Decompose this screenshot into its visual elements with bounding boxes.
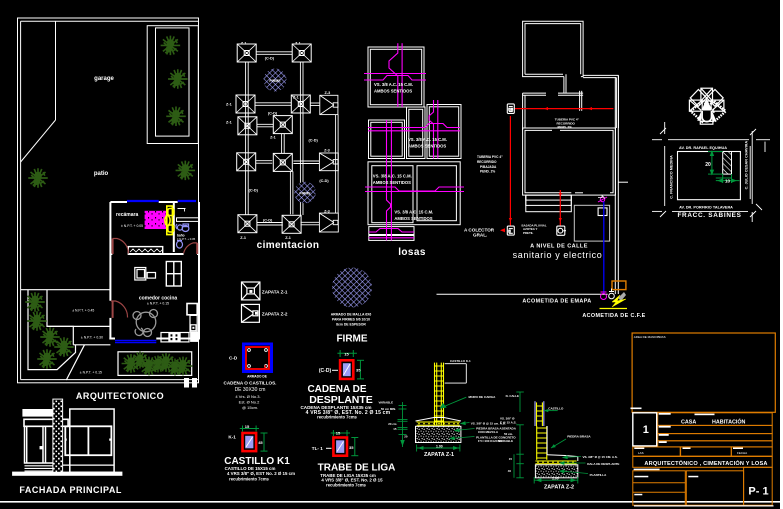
svg-text:4 VRS 3/8" Ø, EST No. 2 Ø: 4 VRS 3/8" Ø, EST No. 2 Ø 15 cm <box>227 471 295 476</box>
svg-text:FRACC. SABINES: FRACC. SABINES <box>677 212 741 219</box>
svg-text:(C-D): (C-D) <box>268 112 278 116</box>
svg-text:(C-D): (C-D) <box>319 179 329 183</box>
svg-text:Z-1: Z-1 <box>240 236 246 240</box>
svg-text:recubrimiento 7cms: recubrimiento 7cms <box>317 415 357 420</box>
svg-text:FACHADA PRINCIPAL: FACHADA PRINCIPAL <box>19 485 122 495</box>
svg-text:FECHA: FECHA <box>737 451 747 455</box>
svg-text:1.00: 1.00 <box>552 477 559 481</box>
svg-text:15: 15 <box>344 352 349 357</box>
svg-text:Z-3: Z-3 <box>324 149 330 153</box>
svg-text:35: 35 <box>356 368 361 373</box>
svg-text:ARQUITECTÓNICO , CIMENTACIÓN Y: ARQUITECTÓNICO , CIMENTACIÓN Y LOSA <box>644 459 767 467</box>
svg-text:VS. 3/8 A.C. 15 C.M.: VS. 3/8 A.C. 15 C.M. <box>394 210 433 215</box>
svg-text:PRETIL: PRETIL <box>523 231 534 235</box>
svg-text:Z-3: Z-3 <box>325 91 331 95</box>
svg-text:PIEDRA BRASA: PIEDRA BRASA <box>567 435 591 439</box>
svg-text:MURO DE CARGA: MURO DE CARGA <box>469 395 497 399</box>
svg-text:8cm DE ESPESOR: 8cm DE ESPESOR <box>336 323 366 327</box>
svg-text:45: 45 <box>258 440 263 445</box>
svg-text:recámara: recámara <box>116 212 138 218</box>
svg-text:± N.P.T. + 0.45: ± N.P.T. + 0.45 <box>72 309 94 313</box>
svg-text:Z-1: Z-1 <box>226 103 232 107</box>
svg-text:4 Vrs. Ø No.3.: 4 Vrs. Ø No.3. <box>235 394 260 399</box>
svg-text:Z-3: Z-3 <box>324 210 330 214</box>
svg-text:VS. 3/8" Ø @ 15 CM. A.S.: VS. 3/8" Ø @ 15 CM. A.S. <box>583 455 618 459</box>
svg-text:15: 15 <box>393 427 397 431</box>
svg-text:RECORRIDO: RECORRIDO <box>477 160 497 164</box>
svg-text:40: 40 <box>508 469 512 473</box>
svg-text:FIRME: FIRME <box>336 334 367 345</box>
svg-text:50 cm MIN.: 50 cm MIN. <box>381 407 396 411</box>
svg-text:(C-D): (C-D) <box>319 368 332 374</box>
svg-text:recubrimiento 7cms: recubrimiento 7cms <box>326 482 366 487</box>
svg-text:CON MEZCLA: CON MEZCLA <box>478 430 499 434</box>
svg-text:± N.P.T. + 0.15: ± N.P.T. + 0.15 <box>147 302 169 306</box>
svg-text:Z-1: Z-1 <box>241 42 247 46</box>
svg-text:15: 15 <box>509 457 513 461</box>
svg-text:AV. DR. PORFIRIO TALAVERA: AV. DR. PORFIRIO TALAVERA <box>679 206 733 210</box>
svg-text:C. FRANCISCO MEDINA: C. FRANCISCO MEDINA <box>670 155 674 199</box>
svg-text:sanitario y electrico: sanitario y electrico <box>513 250 603 260</box>
svg-text:50 cm.: 50 cm. <box>504 432 513 436</box>
svg-text:1: 1 <box>643 424 649 436</box>
svg-text:15: 15 <box>245 424 250 429</box>
svg-text:ARQUITECTONICO: ARQUITECTONICO <box>76 391 164 401</box>
svg-text:VARIABLE: VARIABLE <box>378 401 393 405</box>
svg-text:C-D: C-D <box>229 356 238 361</box>
svg-text:ZAPATA Z-1: ZAPATA Z-1 <box>262 290 288 295</box>
svg-text:Z-1: Z-1 <box>295 42 301 46</box>
svg-text:ZAPATA Z-1: ZAPATA Z-1 <box>424 452 454 458</box>
svg-text:LAS: LAS <box>638 451 644 455</box>
svg-text:± N.P.T. + 0.30: ± N.P.T. + 0.30 <box>81 335 103 339</box>
svg-text:PLANTILLA: PLANTILLA <box>590 473 607 477</box>
svg-text:AMBOS SENTIDOS: AMBOS SENTIDOS <box>373 180 411 185</box>
svg-text:PARA FIRMES 6/6 10/10: PARA FIRMES 6/6 10/10 <box>332 318 370 322</box>
svg-text:TUBERIA PVC 4": TUBERIA PVC 4" <box>477 155 503 159</box>
svg-text:HABITACIÓN: HABITACIÓN <box>712 417 746 425</box>
svg-text:DE 30X30 cm: DE 30X30 cm <box>235 387 266 393</box>
svg-text:@ 15cm.: @ 15cm. <box>242 405 258 410</box>
svg-text:Z-1: Z-1 <box>293 96 299 100</box>
svg-text:(C-D): (C-D) <box>249 189 259 193</box>
svg-text:garage: garage <box>94 76 114 82</box>
svg-text:ARMADO DE MALLA 6X6: ARMADO DE MALLA 6X6 <box>331 313 372 317</box>
svg-text:ARMADO DE: ARMADO DE <box>247 375 267 379</box>
svg-text:P/BAJADA: P/BAJADA <box>480 165 497 169</box>
svg-text:C. JULIO CESAR CHAVIRA: C. JULIO CESAR CHAVIRA <box>745 141 749 190</box>
svg-text:ZAPATA Z-2: ZAPATA Z-2 <box>262 312 288 317</box>
svg-text:TL- 1: TL- 1 <box>312 446 323 451</box>
svg-text:ACOMETIDA DE EMAPA: ACOMETIDA DE EMAPA <box>522 299 591 305</box>
svg-text:AMBOS SENTIDOS: AMBOS SENTIDOS <box>374 89 412 94</box>
svg-text:AMBOS SENTIDOS: AMBOS SENTIDOS <box>394 216 432 221</box>
svg-text:cimentacion: cimentacion <box>257 240 320 251</box>
svg-text:CASTILLO: CASTILLO <box>548 407 564 411</box>
svg-text:20: 20 <box>705 162 711 168</box>
svg-text:CASA: CASA <box>681 419 696 425</box>
svg-text:ZAPATA Z-2: ZAPATA Z-2 <box>544 484 574 490</box>
svg-text:GRAL.: GRAL. <box>473 233 487 238</box>
svg-text:P- 1: P- 1 <box>748 486 768 498</box>
svg-text:AMBOS SENTIDOS: AMBOS SENTIDOS <box>408 144 446 149</box>
svg-text:VS. 3/8 A.C. 15 C.M.: VS. 3/8 A.C. 15 C.M. <box>408 137 447 142</box>
svg-text:A NIVEL DE CALLE: A NIVEL DE CALLE <box>530 244 588 250</box>
svg-text:1.00: 1.00 <box>436 444 443 448</box>
svg-text:35: 35 <box>349 445 354 450</box>
svg-text:losas: losas <box>398 247 426 258</box>
svg-text:patio: patio <box>94 171 109 177</box>
svg-text:recubrimiento 7cms: recubrimiento 7cms <box>229 477 269 482</box>
svg-text:15: 15 <box>336 430 341 435</box>
svg-text:CADENA O CASTILLOS.: CADENA O CASTILLOS. <box>224 381 277 386</box>
svg-text:PEND. 2%: PEND. 2% <box>480 170 495 174</box>
svg-text:VARIABLE: VARIABLE <box>498 439 513 443</box>
svg-text:20: 20 <box>404 435 408 439</box>
svg-text:VS. 3/8 A.C. 15 C.M.: VS. 3/8 A.C. 15 C.M. <box>373 174 412 179</box>
svg-text:Est. Ø No.2: Est. Ø No.2 <box>239 400 260 405</box>
svg-text:FIRME: FIRME <box>269 79 281 83</box>
svg-text:AV. DR. RAFAEL EQUIHUA: AV. DR. RAFAEL EQUIHUA <box>679 146 727 150</box>
svg-text:± N.P.T. + 0.05: ± N.P.T. + 0.05 <box>121 224 143 228</box>
svg-text:FIRME: FIRME <box>299 192 311 196</box>
svg-text:Z-1: Z-1 <box>270 136 276 140</box>
svg-text:K-1: K-1 <box>228 435 236 440</box>
svg-text:AREA DE MANIOBRAS: AREA DE MANIOBRAS <box>634 335 666 339</box>
svg-text:Z-1: Z-1 <box>226 121 232 125</box>
svg-text:E @ 15 A.S.: E @ 15 A.S. <box>500 421 517 425</box>
svg-text:VS. 3/8 A.C. 15 C.M.: VS. 3/8 A.C. 15 C.M. <box>374 82 413 87</box>
svg-text:PEND. 2%: PEND. 2% <box>558 125 573 129</box>
svg-text:DALA DE DESPLANTE: DALA DE DESPLANTE <box>587 462 619 466</box>
svg-text:10: 10 <box>725 179 731 184</box>
svg-text:± N.P.T. + 0.05: ± N.P.T. + 0.05 <box>177 237 196 241</box>
svg-text:20 cm: 20 cm <box>388 422 397 426</box>
svg-text:(C-D): (C-D) <box>263 219 273 223</box>
svg-text:(C-D): (C-D) <box>309 139 319 143</box>
svg-text:CASTILLO K-1: CASTILLO K-1 <box>450 359 471 363</box>
svg-text:ACOMETIDA DE C.F.E: ACOMETIDA DE C.F.E <box>582 313 645 319</box>
svg-text:± N.P.T. + 0.15: ± N.P.T. + 0.15 <box>80 371 102 375</box>
svg-text:(C-D): (C-D) <box>265 57 275 61</box>
svg-text:N. CALLE: N. CALLE <box>506 394 519 398</box>
